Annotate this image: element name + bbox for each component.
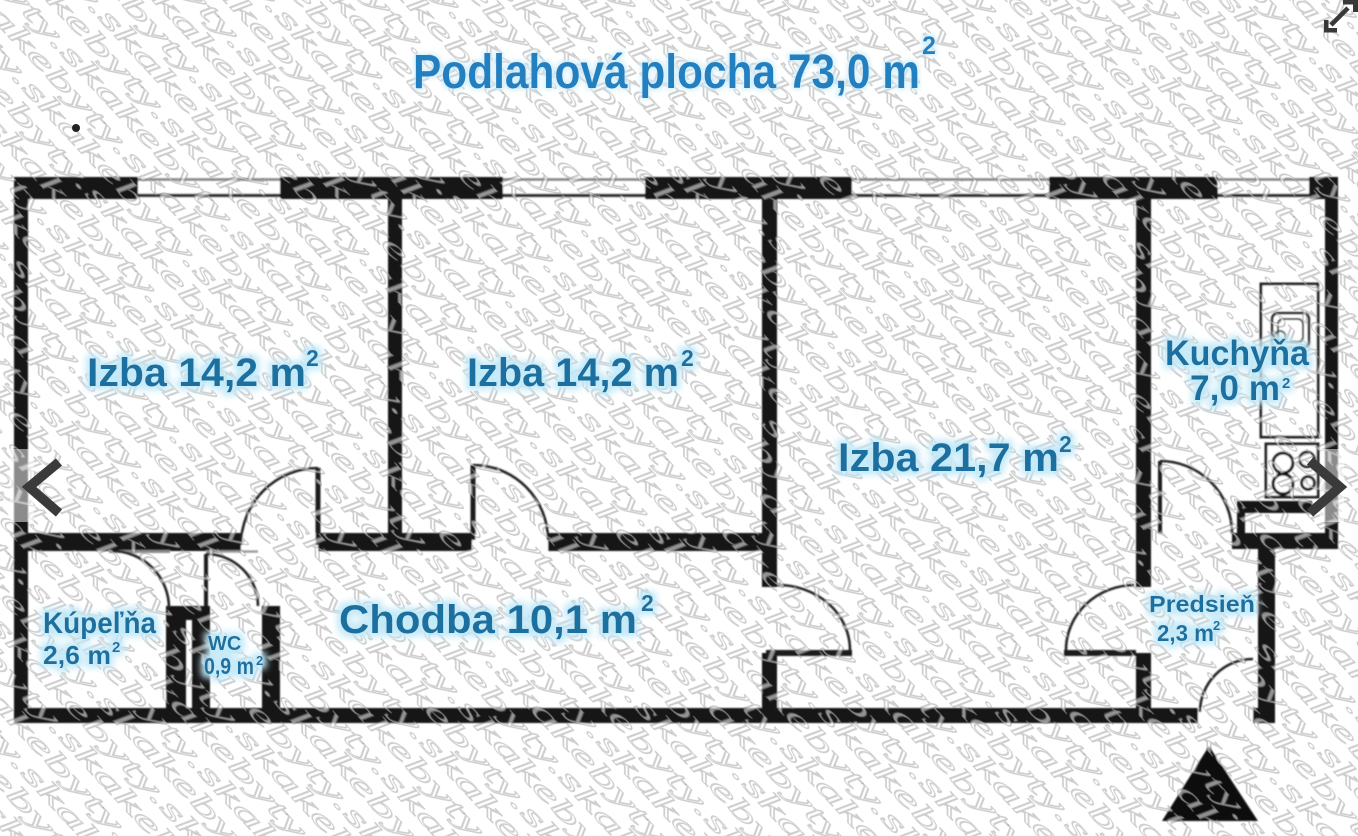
svg-text:Izba 14,2 m: Izba 14,2 m <box>467 351 679 395</box>
svg-text:2: 2 <box>1213 618 1220 633</box>
svg-text:2: 2 <box>681 345 694 371</box>
svg-text:2: 2 <box>1282 375 1290 392</box>
svg-text:0,9 m: 0,9 m <box>204 653 254 679</box>
svg-text:2: 2 <box>306 345 319 371</box>
svg-text:Podlahová plocha 73,0 m: Podlahová plocha 73,0 m <box>413 46 920 99</box>
svg-text:2: 2 <box>1059 431 1072 457</box>
svg-text:2: 2 <box>641 590 654 616</box>
svg-text:Chodba 10,1 m: Chodba 10,1 m <box>339 598 637 642</box>
svg-text:WC: WC <box>208 633 241 655</box>
svg-text:2: 2 <box>112 639 120 656</box>
svg-text:2: 2 <box>922 32 936 60</box>
svg-text:7,0 m: 7,0 m <box>1190 369 1280 408</box>
svg-text:Izba 14,2 m: Izba 14,2 m <box>87 351 306 395</box>
svg-text:2,3 m: 2,3 m <box>1157 620 1214 646</box>
svg-text:Izba 21,7 m: Izba 21,7 m <box>838 436 1059 480</box>
svg-text:Predsieň: Predsieň <box>1149 591 1255 617</box>
svg-text:Kuchyňa: Kuchyňa <box>1165 334 1310 373</box>
svg-text:2: 2 <box>256 653 263 668</box>
svg-text:Kúpeľňa: Kúpeľňa <box>43 607 156 640</box>
svg-text:2,6 m: 2,6 m <box>43 640 111 670</box>
